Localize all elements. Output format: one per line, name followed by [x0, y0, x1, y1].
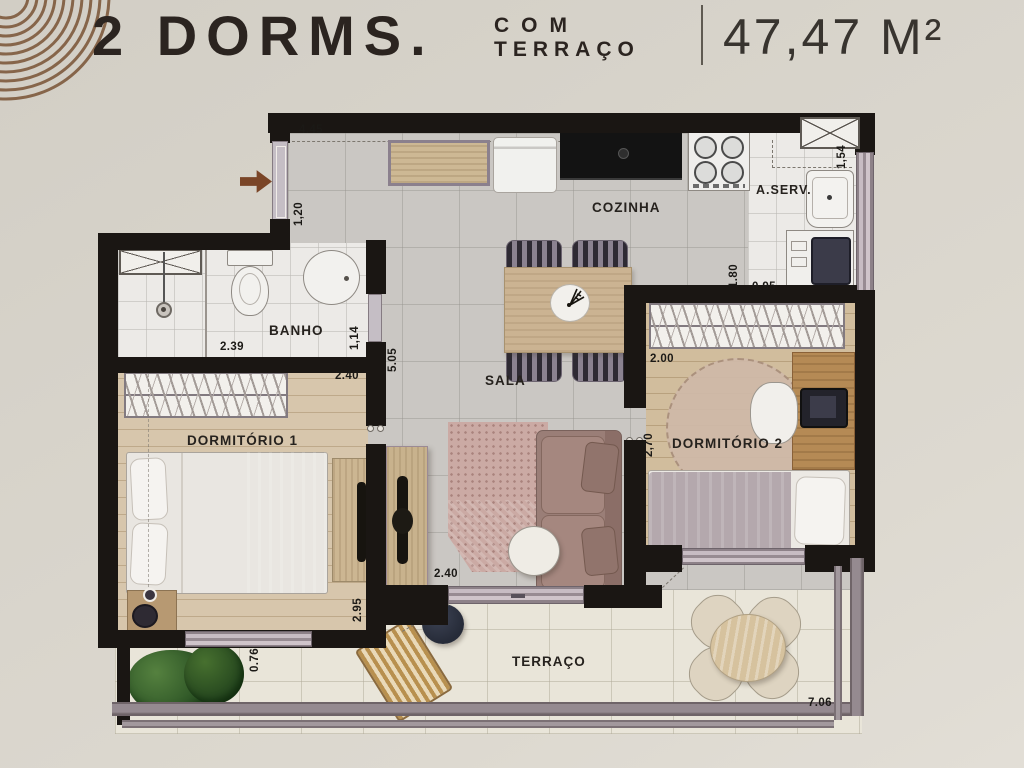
kitchen-sink-cabinet: [493, 137, 557, 193]
dimension-label: 2.40: [335, 370, 359, 382]
door-pivot-icon: [367, 425, 374, 432]
terrace-railing: [122, 720, 834, 728]
monitor-icon: [800, 388, 848, 428]
laundry-tank: [806, 170, 854, 228]
dimension-label: 1.80: [728, 264, 740, 288]
section-line-dashed: [148, 374, 149, 592]
floor-plan-page: 2 DORMS. COM TERRAÇO 47,47 M²: [0, 0, 1024, 768]
single-bed: [648, 470, 850, 554]
lamp-icon: [132, 604, 158, 628]
terrace-railing: [112, 702, 864, 716]
room-label-banho: BANHO: [269, 323, 324, 338]
room-label-cozinha: COZINHA: [592, 200, 661, 215]
blanket: [247, 452, 329, 593]
entrance-arrow-icon: [240, 168, 272, 195]
room-label-aserv: A.SERV.: [756, 183, 812, 197]
dimension-label: 2.39: [220, 341, 244, 353]
service-boundary-dashed-v: [772, 140, 773, 168]
bedroom2-window: [682, 548, 805, 565]
toilet: [227, 250, 273, 266]
dimension-label: 0.95: [752, 281, 776, 293]
desk-chair: [750, 382, 798, 444]
plant: [184, 644, 244, 704]
double-bed: [126, 452, 328, 594]
dimension-label: 4.45: [299, 124, 323, 136]
dimension-label: 2.40: [434, 568, 458, 580]
coffee-table: [508, 526, 560, 576]
kitchen-sink-dot: [618, 148, 629, 159]
bathroom-door: [368, 294, 382, 342]
toilet-bowl: [231, 266, 269, 316]
burner-icon: [721, 136, 744, 159]
tv-icon: [357, 482, 366, 562]
room-label-dorm1: DORMITÓRIO 1: [187, 433, 298, 448]
blanket: [649, 472, 791, 552]
dimension-label: 1,20: [293, 202, 305, 226]
door-pivot-icon: [377, 425, 384, 432]
header-divider: [701, 5, 703, 65]
terrace-sliding-door: [448, 586, 584, 604]
subtitle-line1: COM: [494, 14, 640, 38]
wall: [855, 290, 875, 572]
sofa-pillow: [581, 525, 620, 576]
table-centerpiece: [550, 284, 590, 322]
kitchen-counter-wood: [388, 140, 490, 186]
wardrobe: [649, 303, 845, 349]
dimension-label: 1,14: [349, 326, 361, 350]
wall: [624, 285, 857, 303]
shower-pipe: [163, 252, 165, 306]
dimension-label: 0.76: [249, 648, 261, 672]
page-subtitle: COM TERRAÇO: [494, 14, 640, 62]
dimension-label: 7.06: [808, 697, 832, 709]
wall: [366, 342, 386, 426]
service-window: [856, 152, 874, 292]
bathroom-sink: [303, 250, 360, 305]
sofa-pillow: [580, 441, 620, 495]
wall: [98, 233, 290, 250]
page-title: 2 DORMS.: [92, 8, 435, 64]
room-label-dorm2: DORMITÓRIO 2: [672, 436, 783, 451]
wall: [270, 113, 290, 143]
duct-crossbox-icon: [800, 117, 860, 149]
wall: [646, 545, 682, 572]
dimension-label: 2,70: [643, 433, 655, 457]
room-label-terraco: TERRAÇO: [512, 654, 586, 669]
wall: [98, 357, 370, 373]
wall: [384, 585, 448, 625]
area-value: 47,47 M²: [723, 12, 944, 62]
dimension-label: 2.95: [352, 598, 364, 622]
shower-drain-icon: [156, 302, 172, 318]
tv-soundbar-icon: [392, 508, 413, 534]
bedroom1-window: [185, 631, 312, 647]
burner-icon: [694, 136, 717, 159]
room-label-sala: SALA: [485, 373, 526, 388]
wall: [624, 285, 646, 408]
dimension-label: 5.05: [387, 348, 399, 372]
duct-crossbox-icon: [119, 249, 202, 275]
stove-knobs: [693, 184, 745, 188]
dimension-label: 1,54: [836, 145, 848, 169]
stove: [688, 131, 750, 191]
dimension-label: 2.00: [650, 353, 674, 365]
terrace-railing: [834, 566, 842, 720]
burner-icon: [694, 161, 717, 184]
burner-icon: [721, 161, 744, 184]
dining-chair: [572, 348, 628, 382]
wall: [366, 444, 386, 648]
washing-machine: [786, 230, 854, 288]
wall: [584, 585, 662, 608]
wall: [624, 440, 646, 608]
wall: [268, 113, 875, 133]
wall: [366, 240, 386, 294]
shower-partition: [205, 245, 207, 358]
subtitle-line2: TERRAÇO: [494, 38, 640, 62]
terrace-railing: [850, 558, 864, 716]
lamp-icon: [143, 588, 157, 602]
entry-door: [272, 141, 288, 221]
wall: [98, 233, 118, 648]
terrace-table: [710, 614, 786, 682]
